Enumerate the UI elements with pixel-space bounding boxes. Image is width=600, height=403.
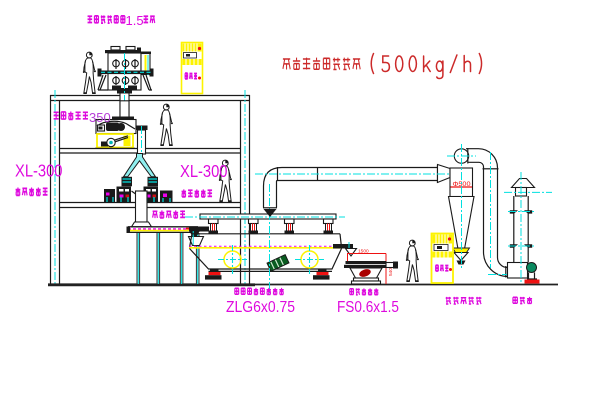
svg-text:XL-300: XL-300 (180, 161, 228, 181)
svg-text:ZLG6x0.75: ZLG6x0.75 (226, 299, 295, 316)
svg-text:1500: 1500 (358, 249, 369, 255)
svg-text:350: 350 (89, 110, 111, 125)
svg-text:XL-300: XL-300 (15, 161, 63, 181)
svg-text:540: 540 (388, 268, 394, 276)
svg-text:FS0.6x1.5: FS0.6x1.5 (337, 299, 399, 316)
svg-text:1.5: 1.5 (126, 13, 144, 28)
